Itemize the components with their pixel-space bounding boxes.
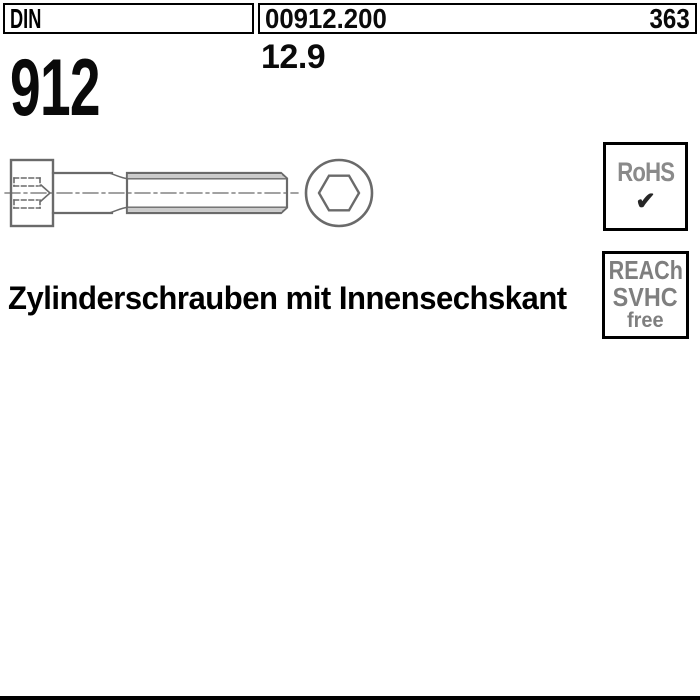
din-standard-box: DIN — [3, 3, 254, 34]
thread-runout-top — [111, 174, 127, 179]
catalog-page: DIN 00912.200 363 912 12.9 — [0, 0, 700, 700]
product-title: Zylinderschrauben mit Innensechskant — [8, 280, 567, 317]
standard-number: 912 — [10, 48, 100, 129]
din-label: DIN — [10, 3, 41, 35]
article-number-box: 00912.200 363 — [258, 3, 697, 34]
article-number: 00912.200 — [265, 3, 387, 35]
svhc-label: SVHC — [613, 284, 678, 311]
reach-label: REACh — [608, 257, 682, 284]
reach-badge: REACh SVHC free — [602, 251, 689, 339]
page-number: 363 — [650, 3, 690, 35]
rohs-label: RoHS — [617, 159, 674, 186]
screw-technical-drawing — [0, 140, 390, 250]
bottom-divider-bar — [0, 696, 700, 700]
thread-runout-bottom — [111, 207, 127, 212]
strength-class: 12.9 — [261, 39, 325, 76]
hex-socket-end-view — [319, 176, 359, 211]
rohs-badge: RoHS ✔ — [603, 142, 688, 231]
rohs-check-icon: ✔ — [635, 189, 655, 215]
free-label: free — [627, 310, 664, 332]
